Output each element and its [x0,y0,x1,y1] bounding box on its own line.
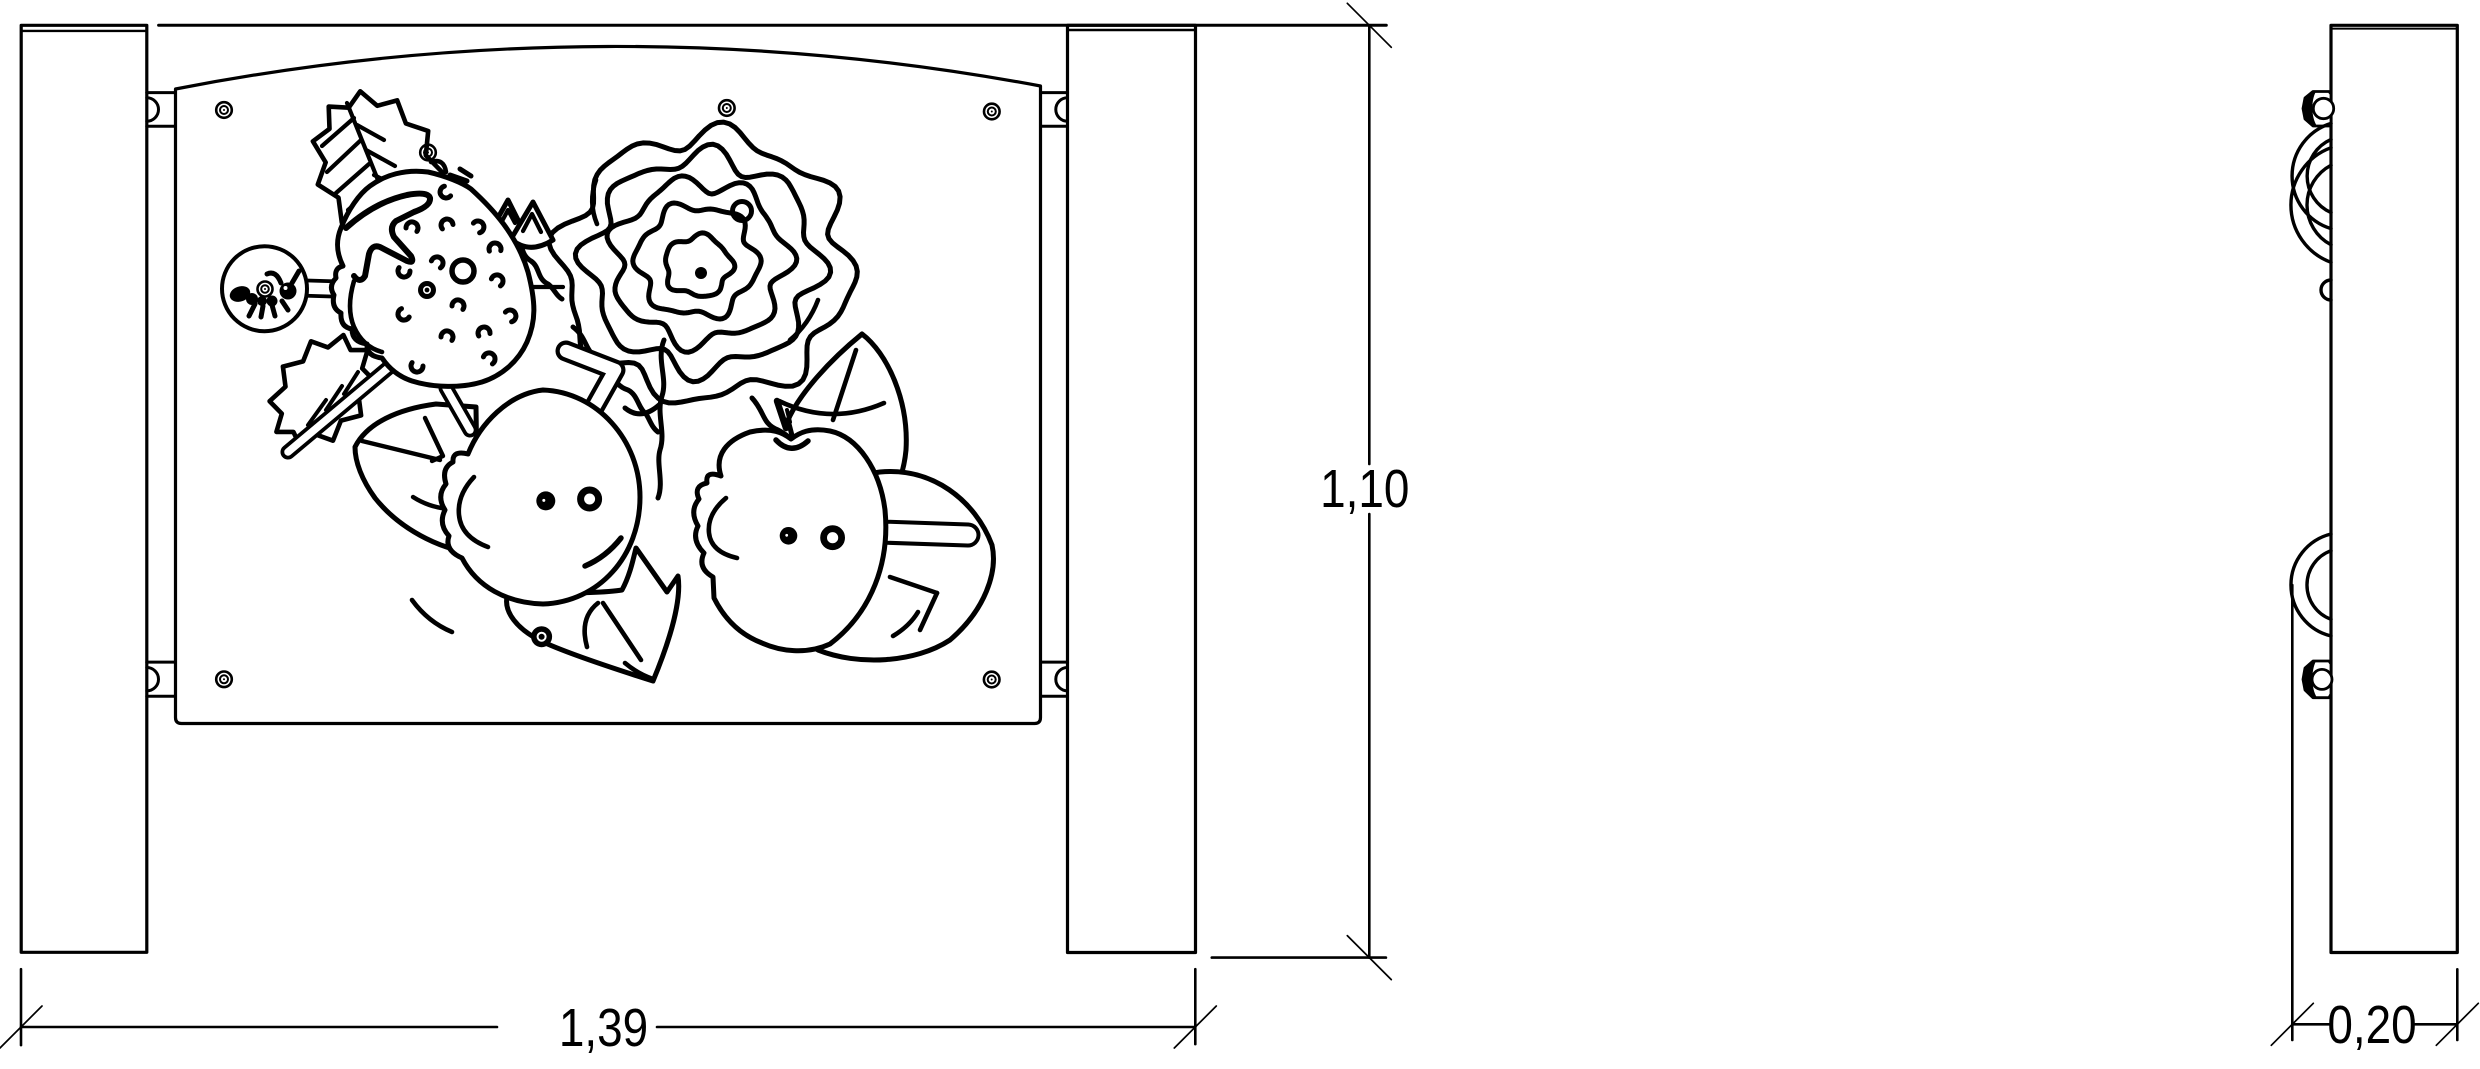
svg-text:0,20: 0,20 [2327,995,2416,1055]
svg-text:1,39: 1,39 [559,998,648,1058]
svg-text:1,10: 1,10 [1320,459,1409,519]
